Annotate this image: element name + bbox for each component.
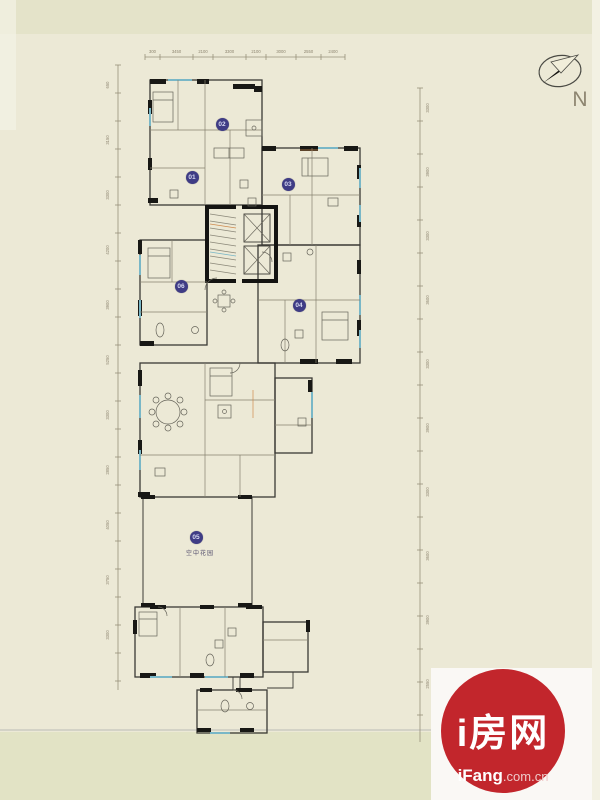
dimension-mark: 3750	[105, 575, 110, 585]
scanned-floorplan-page: 3003450210033002100300025502400650315033…	[0, 0, 600, 800]
north-label: N	[572, 88, 587, 111]
dimension-mark: 3300	[225, 49, 235, 54]
dimension-labels: 3003450210033002100300025502400650315033…	[105, 49, 430, 689]
dimension-mark: 3000	[276, 49, 286, 54]
dimension-mark: 3300	[425, 359, 430, 369]
dimension-mark: 650	[105, 81, 110, 89]
dimension-ticks	[115, 54, 423, 715]
furniture	[139, 92, 348, 712]
dimension-mark: 2850	[105, 465, 110, 475]
dimension-mark: 2400	[328, 49, 338, 54]
dimension-mark: 3300	[105, 630, 110, 640]
compass-needle-outline	[551, 55, 578, 73]
dimension-mark: 2100	[198, 49, 208, 54]
dimension-mark: 3300	[425, 103, 430, 113]
interior-partitions	[140, 80, 360, 710]
sky-garden-label: 空中花园	[178, 548, 222, 557]
dimension-mark: 3900	[425, 615, 430, 625]
unit-marker-05: 05	[190, 531, 203, 544]
unit-marker-04: 04	[293, 299, 306, 312]
dimension-mark: 3900	[425, 167, 430, 177]
wall-chunks	[133, 79, 361, 732]
dimension-mark: 4200	[105, 245, 110, 255]
ifang-watermark-logo: i房网 iFang.com.cn	[431, 668, 592, 800]
dimension-mark: 3600	[425, 551, 430, 561]
logo-brand: iFang	[458, 766, 503, 785]
dimension-mark: 3900	[105, 300, 110, 310]
unit-marker-06: 06	[175, 280, 188, 293]
dimension-mark: 3150	[105, 135, 110, 145]
dimension-mark: 3300	[425, 231, 430, 241]
unit-marker-01: 01	[186, 171, 199, 184]
dimension-mark: 300	[149, 49, 157, 54]
outer-walls	[135, 80, 360, 733]
unit-marker-02: 02	[216, 118, 229, 131]
dimension-mark: 3600	[425, 295, 430, 305]
logo-suffix: .com.cn	[503, 769, 549, 784]
dimension-mark: 2550	[425, 679, 430, 689]
dimension-mark: 3300	[105, 410, 110, 420]
dimension-mark: 5250	[105, 355, 110, 365]
dimension-mark: 2550	[304, 49, 314, 54]
dimension-mark: 3300	[105, 190, 110, 200]
dimension-mark: 3300	[425, 487, 430, 497]
dimension-mark: 4050	[105, 520, 110, 530]
logo-url: iFang.com.cn	[431, 766, 575, 786]
window-lines	[140, 80, 360, 733]
compass: N	[537, 53, 588, 111]
unit-marker-03: 03	[282, 178, 295, 191]
dimension-mark: 3900	[425, 423, 430, 433]
dimension-mark: 3450	[172, 49, 182, 54]
dimension-mark: 2100	[251, 49, 261, 54]
core-stair-elevator	[207, 207, 276, 281]
logo-title: i房网	[431, 702, 575, 757]
dimension-lines	[118, 57, 420, 742]
